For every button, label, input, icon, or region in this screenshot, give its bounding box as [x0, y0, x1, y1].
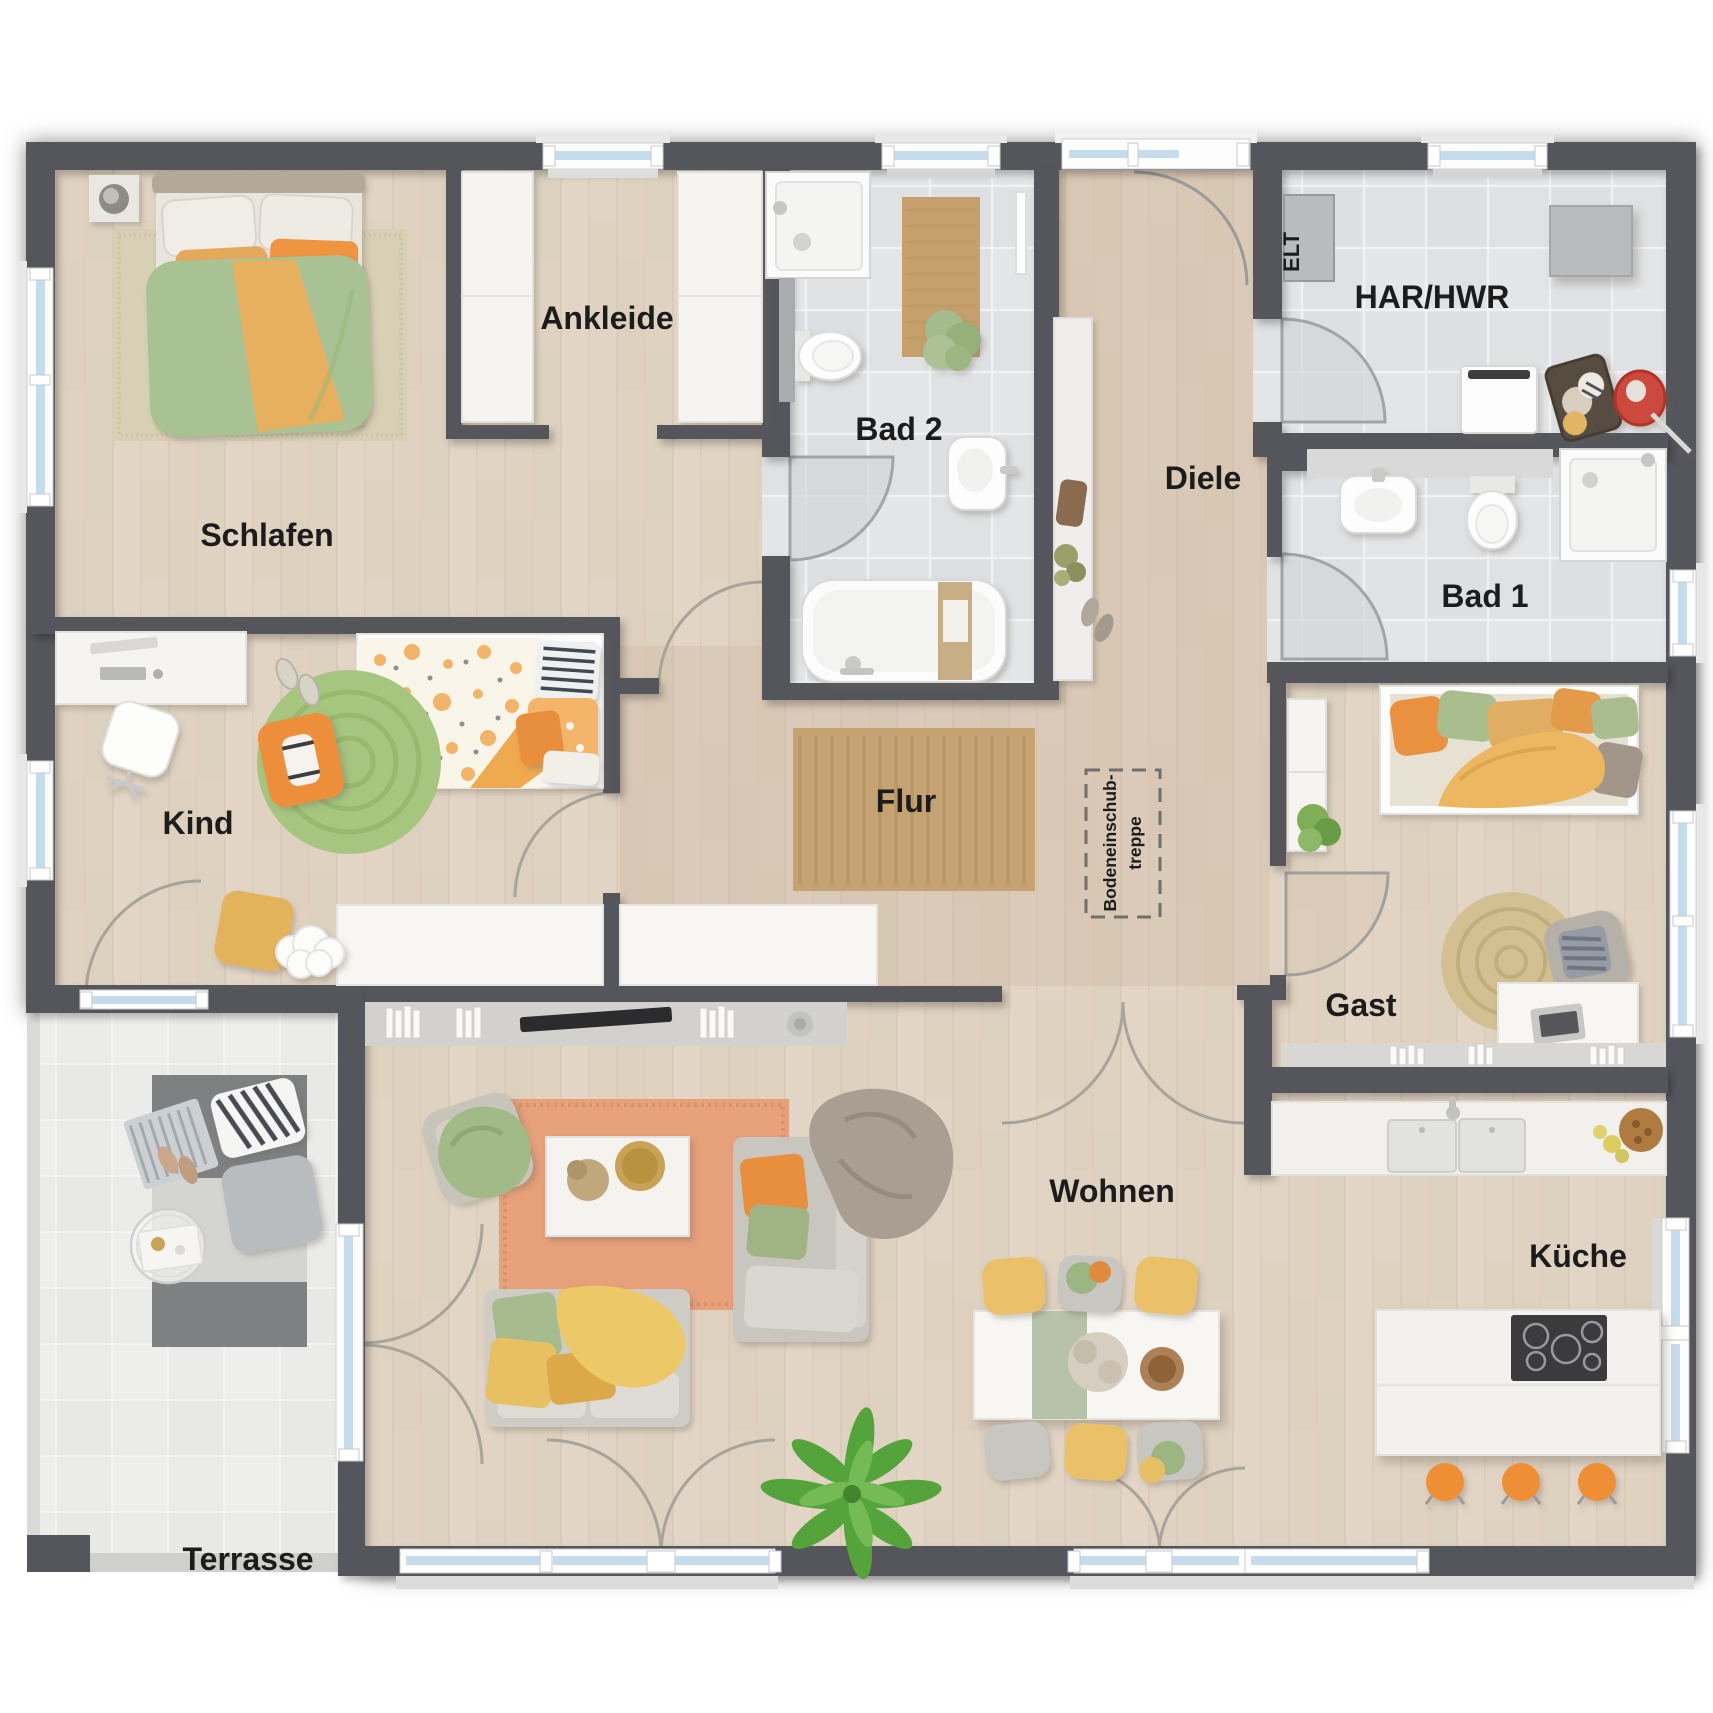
svg-text:Schlafen: Schlafen: [200, 517, 333, 553]
svg-text:Terrasse: Terrasse: [182, 1541, 313, 1577]
svg-text:Wohnen: Wohnen: [1049, 1173, 1175, 1209]
svg-text:ELT: ELT: [1279, 231, 1304, 271]
svg-text:Diele: Diele: [1165, 460, 1241, 496]
svg-text:HAR/HWR: HAR/HWR: [1355, 279, 1510, 315]
svg-text:Bad 2: Bad 2: [855, 411, 942, 447]
svg-text:Gast: Gast: [1325, 987, 1396, 1023]
svg-text:Flur: Flur: [876, 783, 936, 819]
svg-text:treppe: treppe: [1125, 816, 1145, 870]
svg-text:Küche: Küche: [1529, 1238, 1627, 1274]
svg-text:Bad 1: Bad 1: [1441, 578, 1528, 614]
svg-text:Kind: Kind: [162, 805, 233, 841]
svg-text:Ankleide: Ankleide: [540, 300, 673, 336]
svg-text:Bodeneinschub-: Bodeneinschub-: [1100, 774, 1120, 911]
